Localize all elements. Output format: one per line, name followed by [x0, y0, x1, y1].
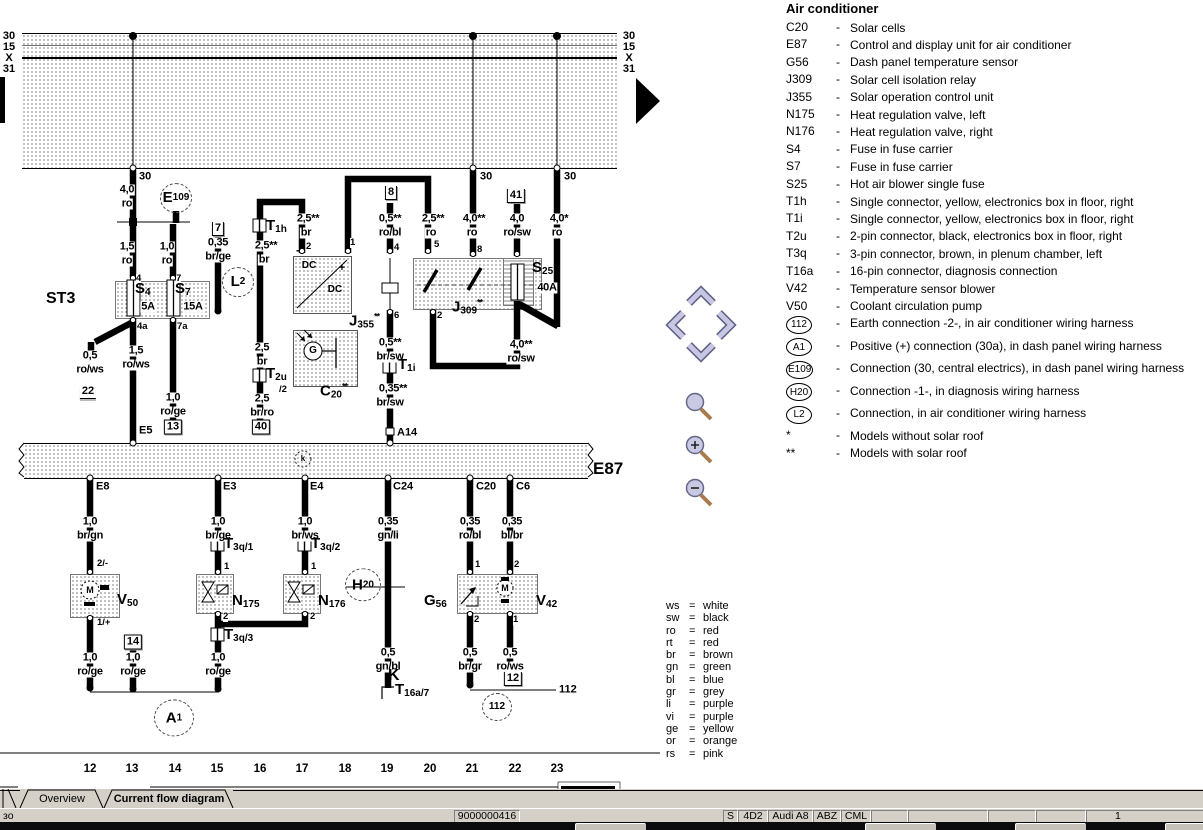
wire-label: br/ge [204, 252, 231, 263]
pin-label: 2 [514, 560, 519, 570]
wire-label: gn/li [376, 531, 399, 542]
legend-title: Air conditioner [786, 1, 1201, 16]
wire-label: ro/ws [75, 365, 104, 376]
component-label: K [388, 667, 400, 685]
component-label: T2u [266, 367, 287, 385]
legend-dash: - [836, 280, 850, 297]
wire-color-row: sw=black [666, 612, 737, 624]
tab-overview-label[interactable]: Overview [39, 793, 85, 805]
wire-label: 0,35 [501, 517, 523, 528]
wire-color-row: ro=red [666, 625, 737, 637]
taskbar-button[interactable] [865, 823, 936, 830]
wire-color-cell: green [703, 661, 731, 673]
legend-code: H20 [786, 382, 836, 401]
wire-color-cell: = [689, 612, 703, 624]
track-number: 14 [169, 763, 182, 775]
wire-label: 1,0 [210, 517, 226, 528]
wire-color-cell: black [703, 612, 729, 624]
legend-row: T2u-2-pin connector, black, electronics … [786, 228, 1201, 245]
pin-label: 1 [350, 238, 355, 248]
wire-color-cell: white [703, 600, 729, 612]
legend-description: Solar operation control unit [850, 89, 1196, 106]
ground-ref-41: 41 [507, 189, 525, 203]
legend-code: T3q [786, 245, 836, 262]
pin-label: 1 [224, 562, 229, 572]
legend-dash: - [836, 89, 850, 106]
wire-label: 2,5** [254, 241, 278, 252]
wire-color-cell: = [689, 674, 703, 686]
bus-label: 31 [623, 63, 635, 75]
bus-label: 31 [3, 63, 15, 75]
legend-dash: - [836, 337, 850, 354]
diagram-labels-layer: 4,0ro1,5ro1,0ro0,35br/ge2,5**br2,5**br0,… [0, 0, 780, 790]
component-label: G56 [424, 594, 447, 612]
wire-color-cell: rt [666, 637, 689, 649]
connection-circle: 112 [482, 693, 512, 721]
terminal-label: 30 [564, 172, 576, 183]
component-label: J309** [452, 296, 482, 319]
pin-label: 7a [177, 322, 188, 332]
wire-color-cell: = [689, 600, 703, 612]
taskbar-button[interactable] [1015, 823, 1086, 830]
legend-code: V42 [786, 280, 836, 297]
wire-color-cell: = [689, 711, 703, 723]
wire-label: 0,5 [462, 648, 478, 659]
tab-strip-edge [233, 790, 1203, 791]
legend-dash: - [836, 123, 850, 140]
legend-code: J355 [786, 89, 836, 106]
symbol-text: + [339, 263, 345, 273]
connection-circle: L2 [222, 267, 254, 297]
wire-label: 0,35** [378, 384, 408, 395]
wire-label: br/gr [457, 662, 483, 673]
pin-label: 2/- [97, 559, 108, 569]
legend-description: Solar cells [850, 19, 1196, 36]
legend-row: T3q-3-pin connector, brown, in plenum ch… [786, 245, 1201, 262]
elsa-wiring-diagram-window: 4,0ro1,5ro1,0ro0,35br/ge2,5**br2,5**br0,… [0, 0, 1203, 830]
legend-code: S25 [786, 176, 836, 193]
wire-color-row: br=brown [666, 649, 737, 661]
component-label: T1h [266, 219, 287, 237]
wire-label: 1,0 [125, 653, 141, 664]
component-label: N176 [318, 594, 346, 612]
wire-label: ro/sw [506, 354, 535, 365]
legend-code: A1 [786, 337, 836, 356]
wire-label: 4,0** [462, 214, 486, 225]
terminal-label: C20 [476, 482, 496, 493]
legend-description: Heat regulation valve, left [850, 106, 1196, 123]
wire-label: br/ro [249, 408, 275, 419]
wire-color-cell: red [703, 625, 719, 637]
legend-dash: - [836, 158, 850, 175]
wire-label: ro/ge [159, 407, 186, 418]
track-number: 18 [339, 763, 352, 775]
wire-label: 2,5** [421, 214, 445, 225]
wire-label: 1,0 [210, 653, 226, 664]
symbol-text: DC [328, 285, 342, 295]
legend-description: Single connector, yellow, electronics bo… [850, 193, 1196, 210]
wire-label: ro/ws [121, 360, 150, 371]
wire-label: ro [425, 228, 437, 239]
wire-label: 1,0 [297, 517, 313, 528]
legend-dash: - [836, 176, 850, 193]
legend-code: N176 [786, 123, 836, 140]
wire-label: 0,5** [378, 338, 402, 349]
wire-label: ro [551, 228, 563, 239]
wire-color-cell: purple [703, 711, 734, 723]
wire-label: 40A [536, 283, 557, 294]
legend-description: Positive (+) connection (30a), in dash p… [850, 337, 1196, 354]
wire-label: br/sw [375, 398, 404, 409]
terminal-label: 30 [480, 172, 492, 183]
tab-bar: Overview Current flow diagram [0, 789, 1203, 808]
legend-row: S7-Fuse in fuse carrier [786, 158, 1201, 175]
wire-color-cell: orange [703, 735, 737, 747]
wire-color-cell: = [689, 723, 703, 735]
legend-code: G56 [786, 54, 836, 71]
wire-color-cell: rs [666, 748, 689, 760]
legend-row: V50-Coolant circulation pump [786, 298, 1201, 315]
legend-dash: - [836, 382, 850, 399]
pin-label: 1 [475, 560, 480, 570]
terminal-label: A14 [397, 428, 417, 439]
terminal-label: E3 [223, 482, 236, 493]
tab-stub[interactable] [3, 789, 16, 808]
legend-row: J355-Solar operation control unit [786, 89, 1201, 106]
legend-dash: - [836, 36, 850, 53]
legend-description: 16-pin connector, diagnosis connection [850, 263, 1196, 280]
legend-description: Connection (30, central electrics), in d… [850, 360, 1196, 377]
legend-row: T16a-16-pin connector, diagnosis connect… [786, 263, 1201, 280]
connection-circle: A1 [154, 699, 194, 736]
component-label: E87 [593, 459, 623, 479]
legend-code: E109 [786, 360, 836, 379]
wire-label: 1,5 [119, 242, 135, 253]
legend-row: N176-Heat regulation valve, right [786, 123, 1201, 140]
connection-circle: E109 [160, 183, 192, 213]
wire-label: 5A [140, 302, 155, 313]
legend-row: J309-Solar cell isolation relay [786, 71, 1201, 88]
wire-label: 0,5** [378, 214, 402, 225]
legend-row: A1-Positive (+) connection (30a), in das… [786, 337, 1201, 360]
legend-dash: - [836, 405, 850, 422]
wire-label: 0,35 [459, 517, 481, 528]
component-label: T3q/2 [311, 537, 340, 555]
legend-description: Dash panel temperature sensor [850, 54, 1196, 71]
legend-description: Models without solar roof [850, 427, 1196, 444]
wire-color-cell: = [689, 637, 703, 649]
legend-row: S4-Fuse in fuse carrier [786, 141, 1201, 158]
terminal-label: E8 [96, 482, 109, 493]
ground-ref-22: 22 [80, 385, 96, 399]
wire-label: ro/ws [495, 662, 524, 673]
wire-label: ro/bl [378, 228, 402, 239]
component-label: J355** [349, 310, 379, 333]
legend-dash: - [836, 71, 850, 88]
legend-row: T1h-Single connector, yellow, electronic… [786, 193, 1201, 210]
wire-color-row: ws=white [666, 600, 737, 612]
pin-label: /2 [279, 385, 287, 395]
wire-color-row: or=orange [666, 735, 737, 747]
legend-row: E109-Connection (30, central electrics),… [786, 360, 1201, 383]
legend-dash: - [836, 141, 850, 158]
wire-color-cell: grey [703, 686, 724, 698]
symbol-text: k [301, 454, 305, 464]
legend-dash: - [836, 193, 850, 210]
legend-row: G56-Dash panel temperature sensor [786, 54, 1201, 71]
wire-color-cell: br [666, 649, 689, 661]
legend-code: V50 [786, 298, 836, 315]
legend-dash: - [836, 19, 850, 36]
pin-label: 1 [513, 615, 518, 625]
terminal-label: E5 [139, 426, 152, 437]
legend-code: T2u [786, 228, 836, 245]
terminal-label: 112 [559, 685, 577, 696]
wire-label: 4,0** [509, 340, 533, 351]
wire-label: br [258, 255, 270, 266]
wire-label: 2,5 [254, 343, 270, 354]
terminal-label: 30 [139, 172, 151, 183]
taskbar-sliver [0, 822, 1203, 830]
component-label: T1i [398, 358, 416, 376]
component-label: T3q/3 [224, 628, 253, 646]
legend-code: T16a [786, 263, 836, 280]
wire-label: 4,0 [119, 185, 135, 196]
wire-label: ro [121, 199, 133, 210]
legend-row: V42-Temperature sensor blower [786, 280, 1201, 297]
wire-label: ro/ge [76, 667, 103, 678]
wire-label: 0,5 [502, 648, 518, 659]
wire-color-cell: bl [666, 674, 689, 686]
wire-label: ro/ge [119, 667, 146, 678]
wire-color-row: li=purple [666, 698, 737, 710]
pin-label: 2 [474, 615, 479, 625]
component-label: C20** [320, 380, 347, 403]
legend-description: 2-pin connector, black, electronics box … [850, 228, 1196, 245]
wire-color-cell: ge [666, 723, 689, 735]
wire-label: ro [466, 228, 478, 239]
legend-dash: - [836, 228, 850, 245]
legend-code: S4 [786, 141, 836, 158]
pin-label: 6 [394, 311, 399, 321]
wire-label: 2,5 [254, 394, 270, 405]
wire-color-row: ge=yellow [666, 723, 737, 735]
legend-code: T1h [786, 193, 836, 210]
legend-description: Earth connection -2-, in air conditioner… [850, 315, 1196, 332]
symbol-text: - [296, 245, 300, 255]
ground-ref-12: 12 [504, 672, 522, 686]
legend-dash: - [836, 263, 850, 280]
component-label: S25 [532, 261, 553, 279]
wire-color-cell: blue [703, 674, 724, 686]
legend-description: Control and display unit for air conditi… [850, 36, 1196, 53]
wire-label: 1,0 [165, 393, 181, 404]
legend-description: Hot air blower single fuse [850, 176, 1196, 193]
legend-dash: - [836, 106, 850, 123]
wire-color-cell: or [666, 735, 689, 747]
legend-code: * [786, 427, 836, 444]
legend-dash: - [836, 245, 850, 262]
wire-color-cell: = [689, 698, 703, 710]
wire-color-key: ws=whitesw=blackro=redrt=redbr=browngn=g… [666, 600, 737, 760]
wire-color-cell: = [689, 735, 703, 747]
legend-description: 3-pin connector, brown, in plenum chambe… [850, 245, 1196, 262]
pin-label: 1/+ [97, 618, 110, 628]
wire-label: bl/br [500, 531, 524, 542]
wire-color-cell: yellow [703, 723, 734, 735]
symbol-text: DC [302, 261, 316, 271]
wire-label: ro [121, 256, 133, 267]
wire-label: ro/ge [204, 667, 231, 678]
legend-description: Heat regulation valve, right [850, 123, 1196, 140]
wire-color-cell: pink [703, 748, 723, 760]
wire-label: 1,0 [82, 517, 98, 528]
wire-color-cell: gn [666, 661, 689, 673]
track-number: 19 [381, 763, 394, 775]
pin-label: 8 [477, 245, 482, 255]
legend-dash: - [836, 210, 850, 227]
wire-color-cell: sw [666, 612, 689, 624]
ground-ref-13: 13 [164, 420, 182, 435]
wire-label: 4,0* [549, 214, 569, 225]
ground-ref-8: 8 [385, 186, 397, 200]
pin-label: 4 [394, 243, 399, 253]
legend-description: Connection, in air conditioner wiring ha… [850, 405, 1196, 422]
wire-color-cell: ro [666, 625, 689, 637]
legend-row: *-Models without solar roof [786, 427, 1201, 444]
current-flow-diagram-canvas: 4,0ro1,5ro1,0ro0,35br/ge2,5**br2,5**br0,… [0, 0, 780, 790]
component-label: S7 [175, 282, 191, 300]
legend-row: N175-Heat regulation valve, left [786, 106, 1201, 123]
wire-color-cell: = [689, 686, 703, 698]
wire-label: ro/sw [502, 228, 531, 239]
wire-color-cell: red [703, 637, 719, 649]
wire-label: 0,5 [380, 648, 396, 659]
legend-dash: - [836, 445, 850, 462]
wire-label: 0,5 [82, 351, 98, 362]
symbol-text: M [86, 585, 94, 595]
legend-code: E87 [786, 36, 836, 53]
wire-color-cell: brown [703, 649, 733, 661]
legend-description: Temperature sensor blower [850, 280, 1196, 297]
legend-code: 112 [786, 315, 836, 334]
legend-description: Models with solar roof [850, 445, 1196, 462]
wire-color-cell: vi [666, 711, 689, 723]
wire-color-cell: purple [703, 698, 734, 710]
legend-row: C20-Solar cells [786, 19, 1201, 36]
status-left-text: зо [3, 810, 14, 822]
legend-row: H20-Connection -1-, in diagnosis wiring … [786, 382, 1201, 405]
wire-color-row: bl=blue [666, 674, 737, 686]
legend-description: Solar cell isolation relay [850, 71, 1196, 88]
track-number: 20 [424, 763, 437, 775]
pin-label: 2 [306, 242, 311, 252]
legend-row: 112-Earth connection -2-, in air conditi… [786, 315, 1201, 338]
component-label: T3q/1 [224, 537, 253, 555]
wire-label: 4,0 [509, 214, 525, 225]
wire-color-row: gr=grey [666, 686, 737, 698]
wire-label: ro/bl [458, 531, 482, 542]
legend-code: N175 [786, 106, 836, 123]
legend-dash: - [836, 54, 850, 71]
legend-description: Single connector, yellow, electronics bo… [850, 210, 1196, 227]
ground-ref-7: 7 [212, 222, 224, 236]
legend-dash: - [836, 360, 850, 377]
tab-current-flow-diagram-label[interactable]: Current flow diagram [114, 793, 225, 805]
terminal-label: E4 [310, 482, 323, 493]
ground-ref-14: 14 [124, 635, 142, 650]
legend-dash: - [836, 315, 850, 332]
wire-label: br/gn [76, 531, 104, 542]
legend-code: C20 [786, 19, 836, 36]
track-number: 16 [254, 763, 267, 775]
legend-description: Fuse in fuse carrier [850, 141, 1196, 158]
wire-label: 1,0 [159, 242, 175, 253]
pin-label: 4a [137, 322, 148, 332]
legend-code: L2 [786, 405, 836, 424]
wire-color-cell: = [689, 661, 703, 673]
wire-color-cell: = [689, 649, 703, 661]
wire-color-cell: = [689, 748, 703, 760]
status-bar: зо 9000000416S4D2Audi A8ABZCML1 [0, 808, 1203, 823]
wire-label: 0,35 [377, 517, 399, 528]
legend-code: T1i [786, 210, 836, 227]
legend-description: Connection -1-, in diagnosis wiring harn… [850, 382, 1196, 399]
legend-row: **-Models with solar roof [786, 445, 1201, 462]
wire-label: 2,5** [296, 214, 320, 225]
wire-label: 0,35 [207, 238, 229, 249]
wire-color-cell: ws [666, 600, 689, 612]
wire-label: ro [161, 256, 173, 267]
legend-code: J309 [786, 71, 836, 88]
symbol-text: M [501, 583, 509, 593]
track-number: 23 [551, 763, 564, 775]
track-number: 12 [84, 763, 97, 775]
terminal-label: C6 [516, 482, 530, 493]
wire-color-cell: gr [666, 686, 689, 698]
legend-description: Coolant circulation pump [850, 298, 1196, 315]
component-legend: Air conditioner C20-Solar cellsE87-Contr… [786, 1, 1201, 462]
ground-ref-40: 40 [252, 420, 270, 435]
terminal-label: C24 [393, 482, 413, 493]
track-number: 22 [509, 763, 522, 775]
pin-label: 2 [310, 612, 315, 622]
legend-row: L2-Connection, in air conditioner wiring… [786, 405, 1201, 428]
wire-label: 1,5 [128, 346, 144, 357]
wire-color-row: rt=red [666, 637, 737, 649]
track-number: 17 [296, 763, 309, 775]
legend-row: T1i-Single connector, yellow, electronic… [786, 210, 1201, 227]
track-number: 15 [211, 763, 224, 775]
connection-circle: H20 [345, 568, 381, 601]
wire-label: br [300, 228, 312, 239]
wire-label: 1,0 [82, 653, 98, 664]
wire-color-row: vi=purple [666, 711, 737, 723]
legend-dash: - [836, 427, 850, 444]
pin-label: 5 [434, 240, 439, 250]
component-label: V42 [536, 594, 557, 612]
legend-row: S25-Hot air blower single fuse [786, 176, 1201, 193]
component-label: N175 [232, 594, 260, 612]
pin-label: 2 [223, 612, 228, 622]
legend-code: ** [786, 445, 836, 462]
pin-label: 1 [311, 562, 316, 572]
legend-description: Fuse in fuse carrier [850, 158, 1196, 175]
taskbar-button[interactable] [575, 823, 646, 830]
taskbar-button[interactable] [1165, 823, 1203, 830]
wire-label: 15A [182, 302, 203, 313]
track-number: 13 [126, 763, 139, 775]
